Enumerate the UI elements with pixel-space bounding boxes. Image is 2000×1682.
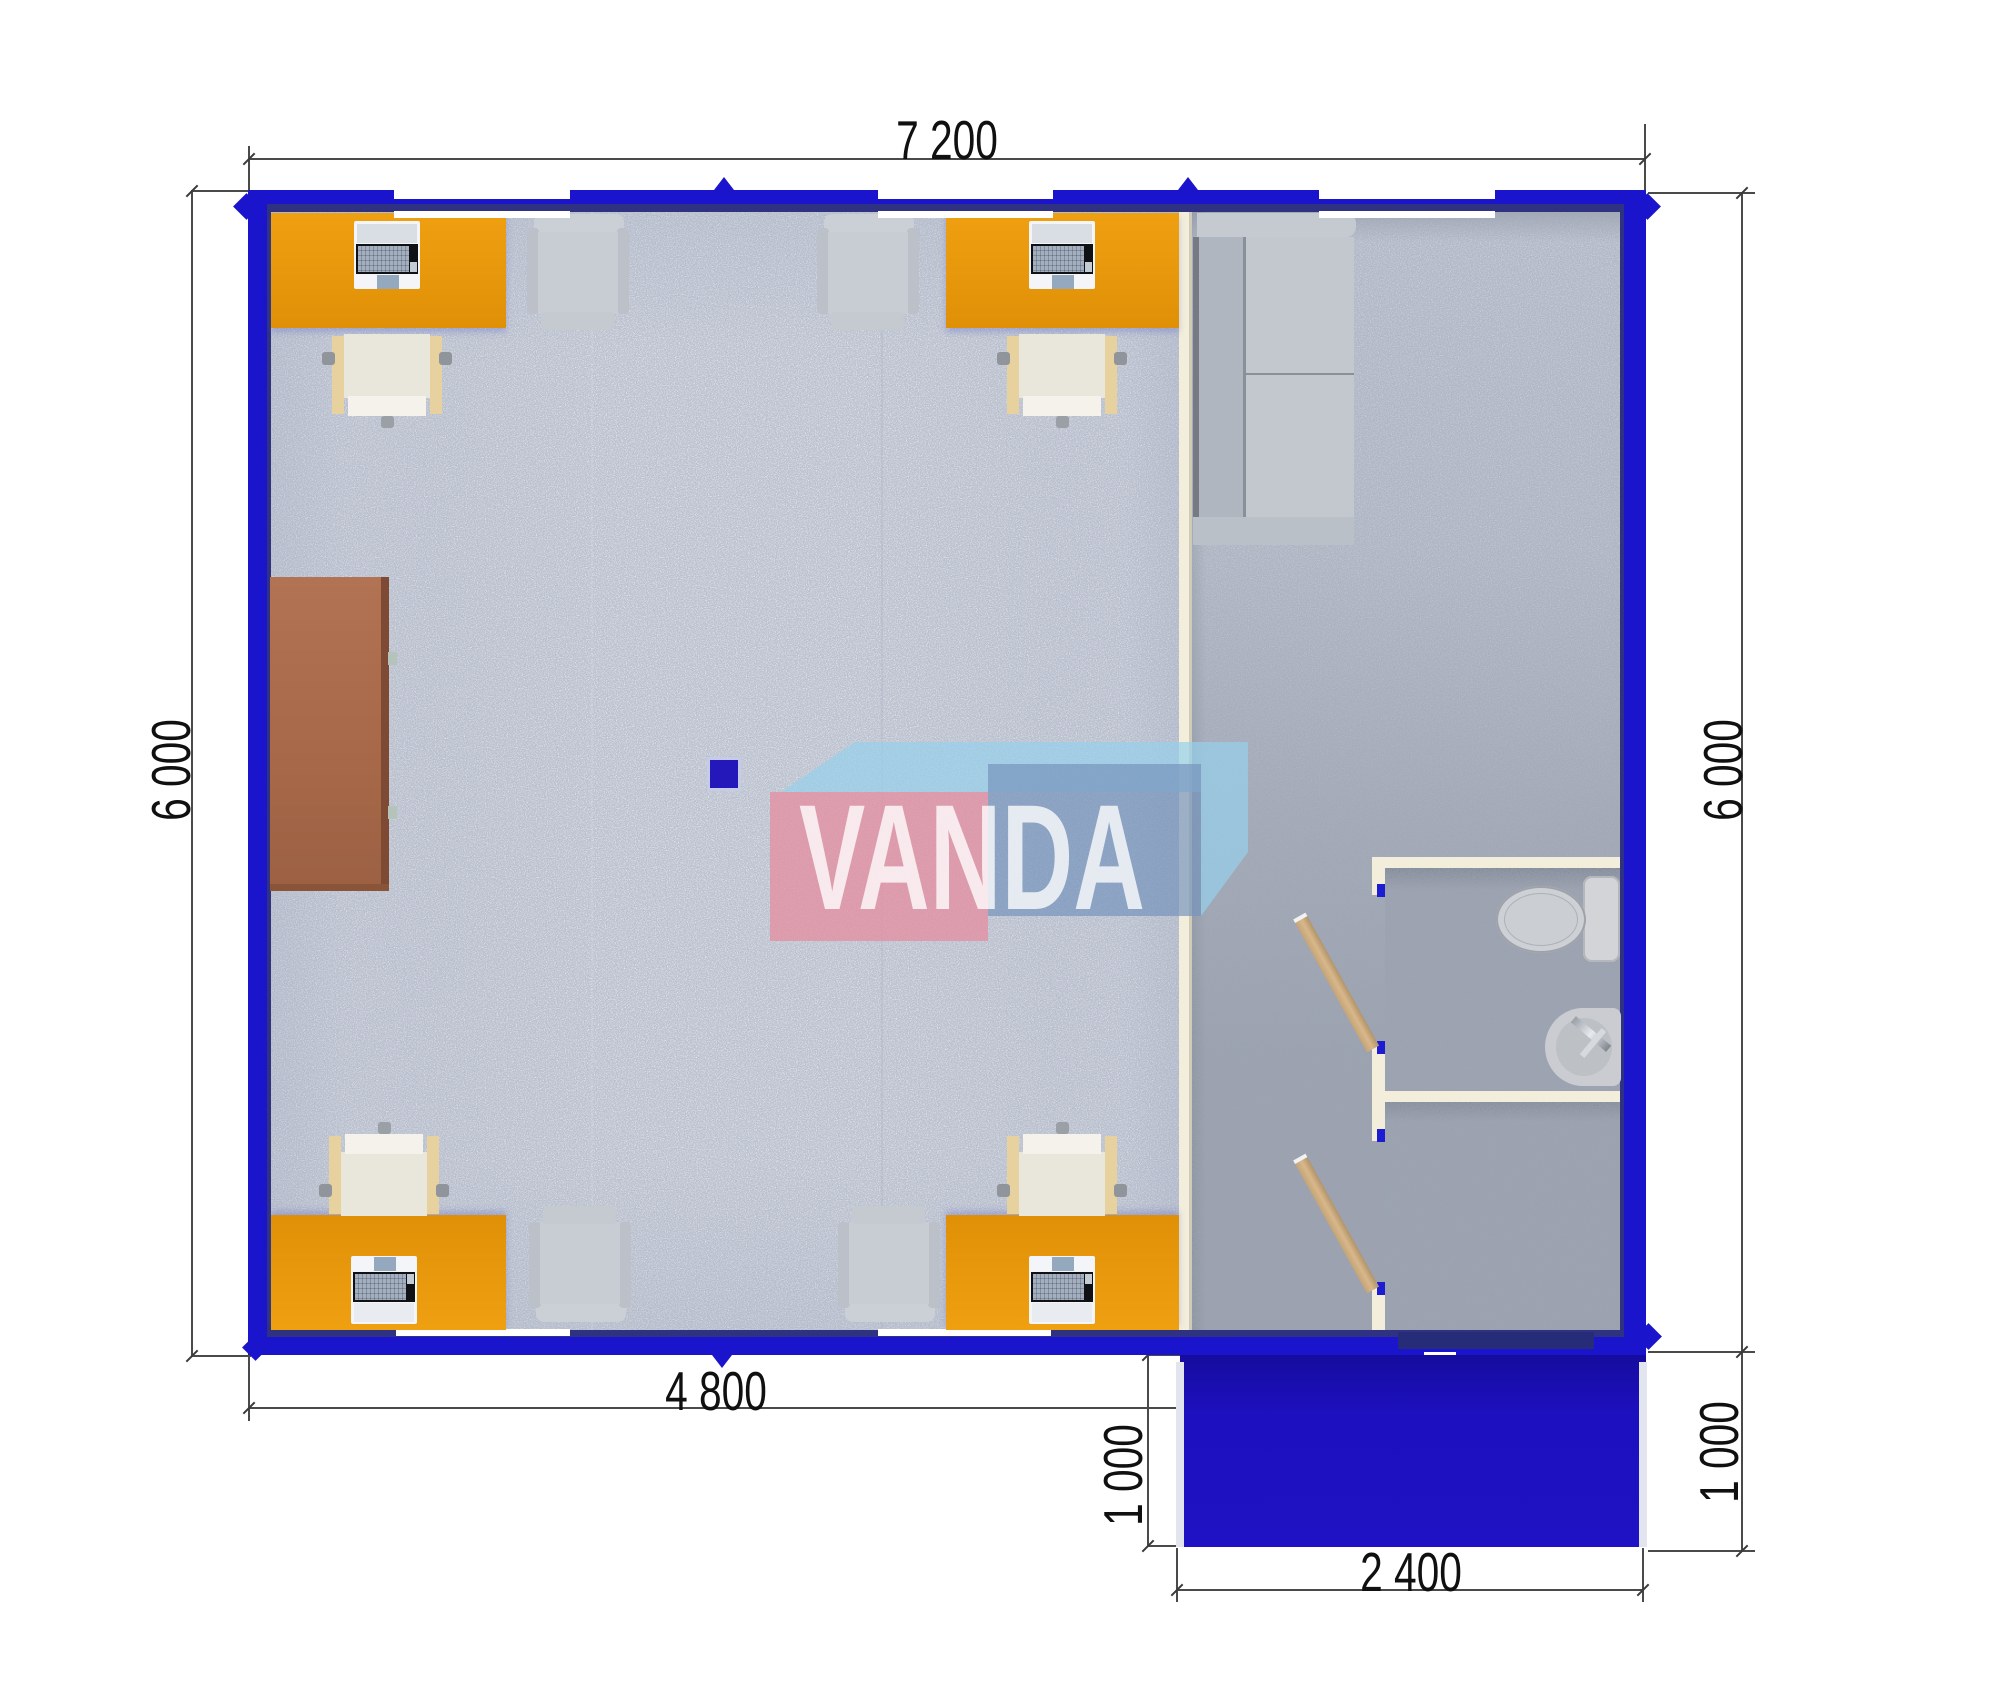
svg-text:VANDA: VANDA: [799, 773, 1145, 941]
